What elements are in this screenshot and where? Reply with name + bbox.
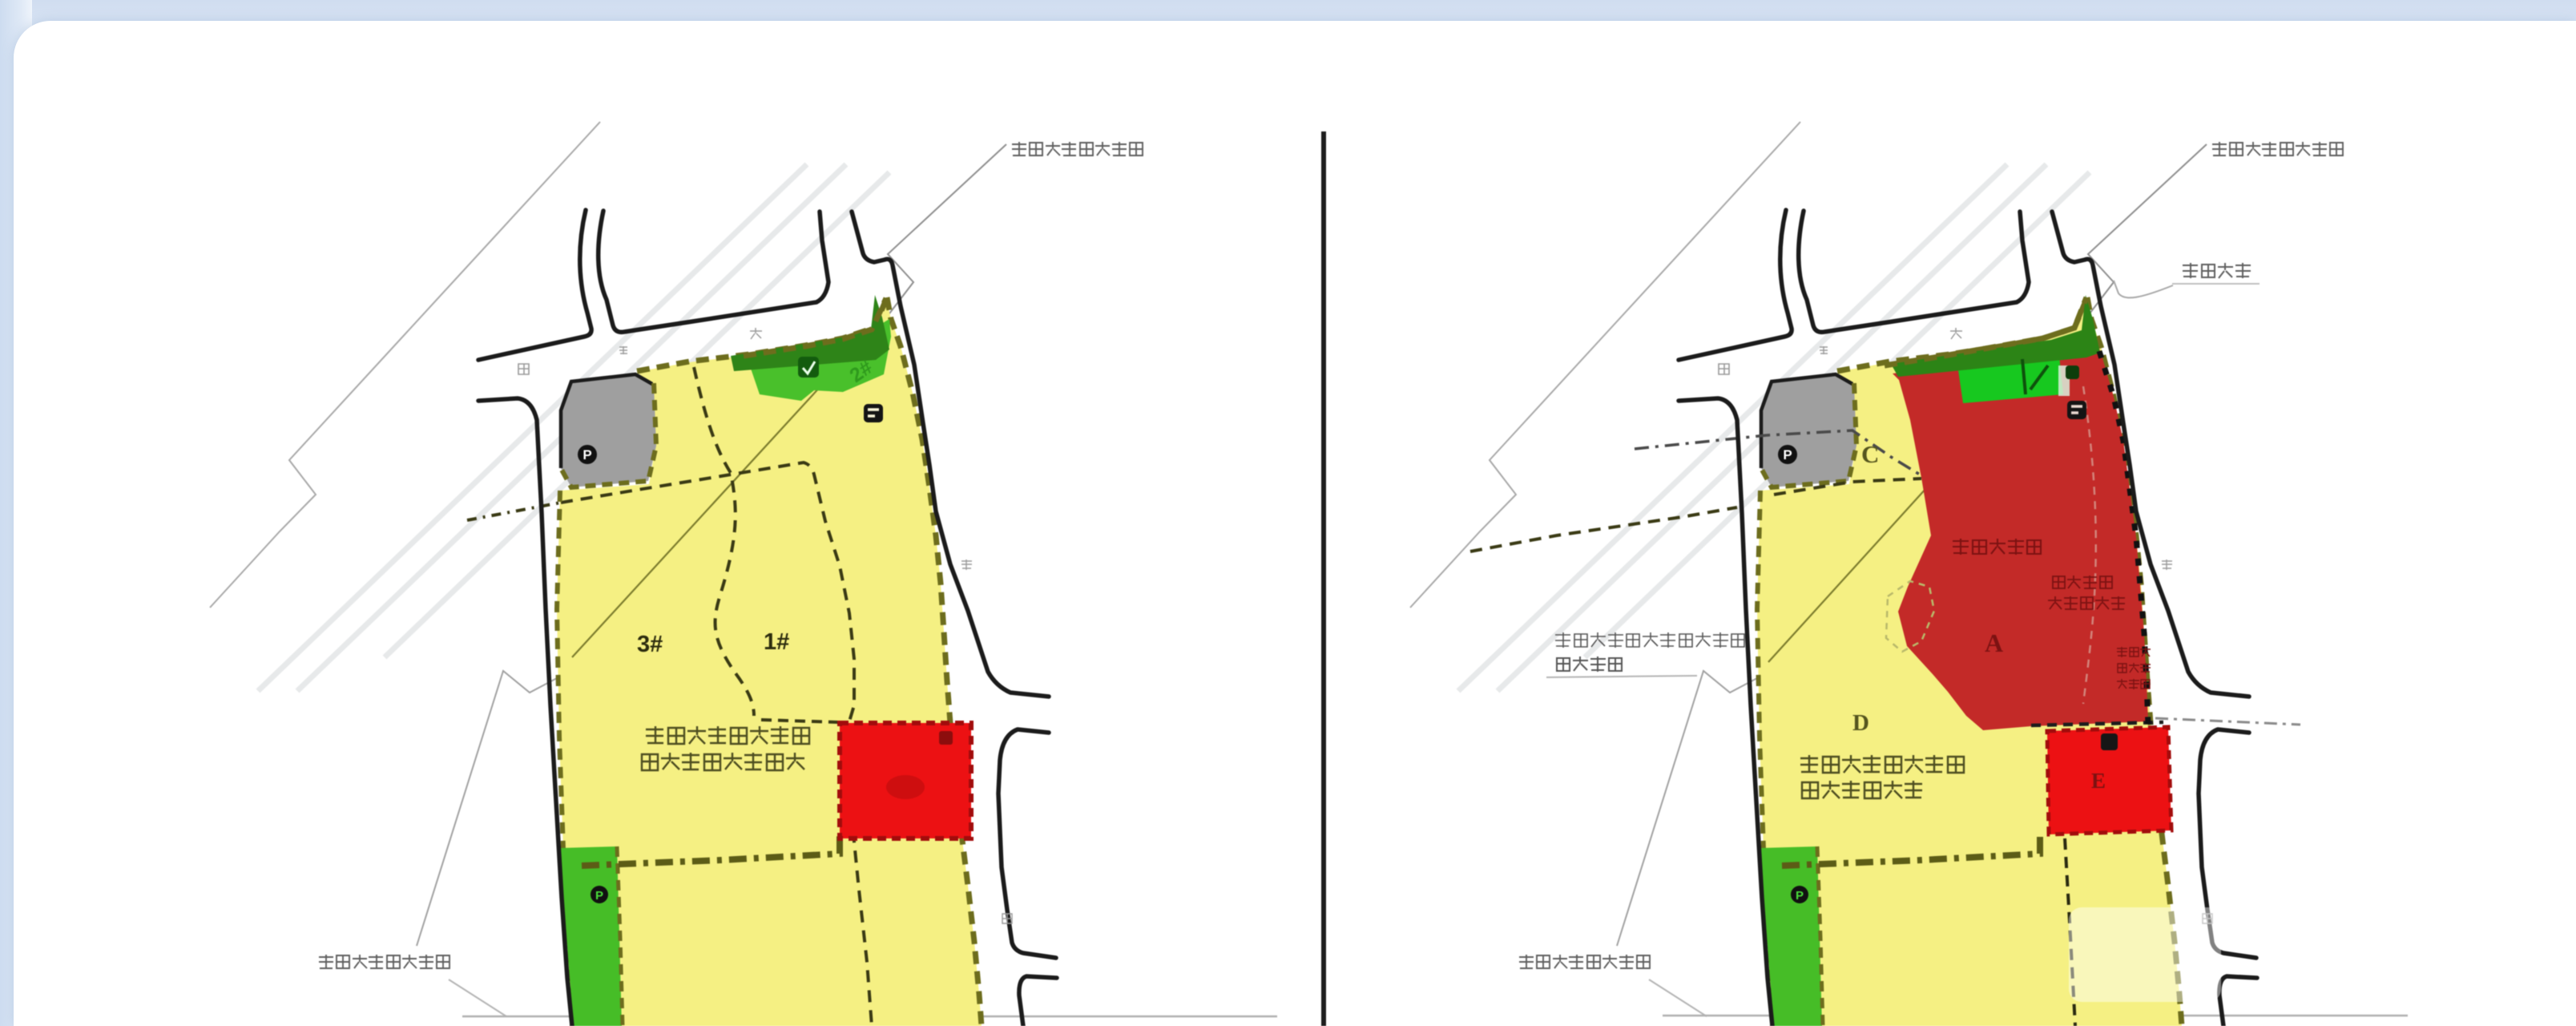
- svg-text:E: E: [2091, 769, 2106, 793]
- svg-text:D: D: [1852, 710, 1869, 736]
- svg-text:P: P: [583, 447, 591, 463]
- svg-text:P: P: [1783, 447, 1792, 463]
- svg-text:P: P: [1796, 889, 1804, 903]
- svg-text:A: A: [1985, 628, 2003, 657]
- svg-text:P: P: [595, 889, 603, 903]
- svg-text:C: C: [1861, 440, 1879, 468]
- svg-text:3#: 3#: [637, 632, 663, 657]
- svg-text:1#: 1#: [764, 629, 789, 655]
